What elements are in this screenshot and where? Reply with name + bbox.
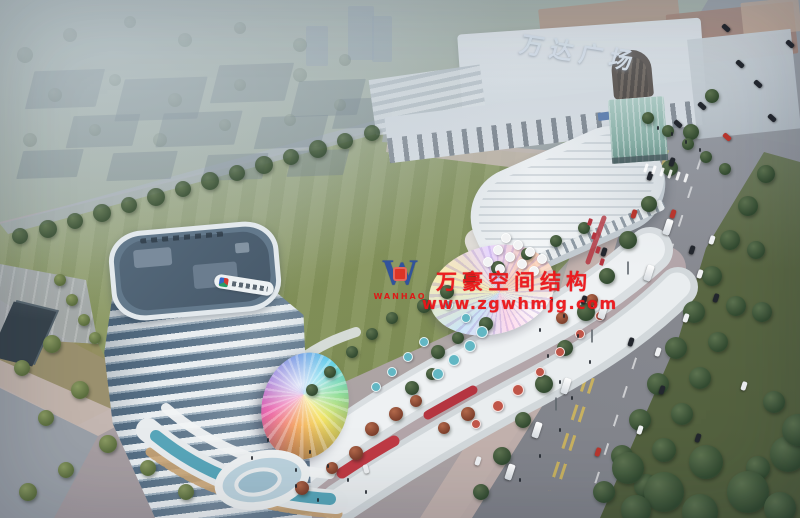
watermark-url: www.zgwhmjg.com: [422, 294, 618, 313]
watermark-title: 万豪空间结构: [436, 266, 592, 296]
tree: [689, 445, 723, 479]
watermark-logo-seal: [393, 267, 407, 281]
tree: [621, 495, 651, 518]
tree: [612, 452, 644, 484]
watermark: W WANHAO 万豪空间结构 www.zgwhmjg.com: [368, 254, 618, 318]
tree: [727, 471, 769, 513]
tree: [682, 494, 718, 518]
tree: [764, 492, 796, 518]
scene: 万达广场: [0, 0, 800, 518]
